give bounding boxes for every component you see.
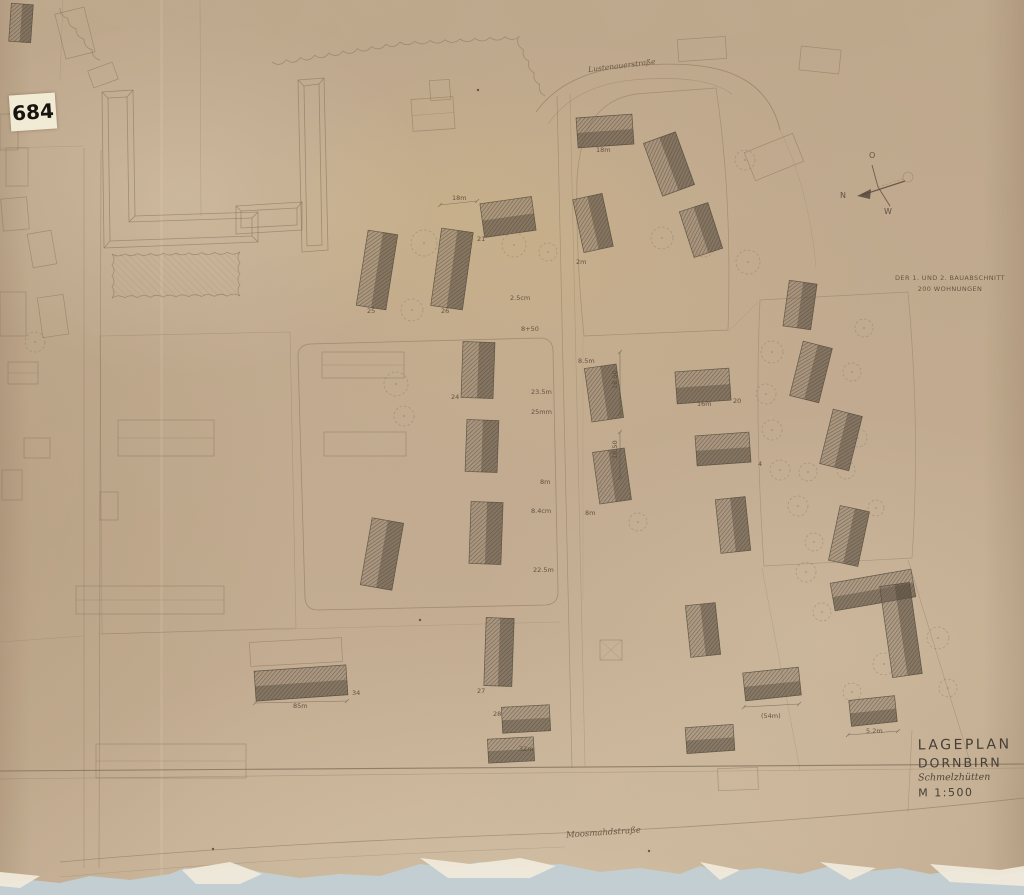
dimension-label: 28 <box>493 710 501 718</box>
planned-building <box>465 419 499 472</box>
site-plan-drawing: 18m2m2118m25262.5cm8+5023.5m25mm248m8.4c… <box>0 0 1024 895</box>
plan-district: Schmelzhütten <box>918 771 1012 786</box>
note-line-1: DER 1. UND 2. BAUABSCHNITT <box>888 273 1012 284</box>
scanned-site-plan: 18m2m2118m25262.5cm8+5023.5m25mm248m8.4c… <box>0 0 1024 895</box>
tree-center-dot <box>703 245 705 247</box>
archive-number: 684 <box>11 99 54 126</box>
garden-plot <box>114 254 238 296</box>
planned-building <box>675 368 731 404</box>
tree-center-dot <box>845 469 847 471</box>
planned-building <box>254 665 348 701</box>
tree-center-dot <box>779 469 781 471</box>
tree-center-dot <box>875 507 877 509</box>
planned-building <box>715 497 750 554</box>
tree-center-dot <box>411 309 413 311</box>
compass-direction-label: W <box>884 207 892 216</box>
planned-building <box>9 3 34 42</box>
archive-number-sticker: 684 <box>9 92 57 131</box>
dimension-label: 22.5m <box>533 566 554 574</box>
dimension-label: 8.4cm <box>531 507 551 515</box>
tree-center-dot <box>513 244 515 246</box>
dimension-label: 18m <box>596 146 611 154</box>
tree-center-dot <box>851 371 853 373</box>
tree-center-dot <box>747 261 749 263</box>
title-block: LAGEPLAN DORNBIRN Schmelzhütten M 1:500 <box>918 736 1012 802</box>
planned-building <box>743 667 802 701</box>
plan-scale: M 1:500 <box>918 785 1012 802</box>
dimension-label: 34 <box>352 689 360 697</box>
dimension-label: 2.5cm <box>510 294 530 302</box>
tree-center-dot <box>851 691 853 693</box>
dimension-label: 18.50 <box>611 370 619 389</box>
tree-center-dot <box>771 351 773 353</box>
tree-center-dot <box>661 237 663 239</box>
planned-building <box>695 432 751 466</box>
tree-center-dot <box>805 571 807 573</box>
dimension-label: 16m <box>697 400 712 408</box>
tree-center-dot <box>947 687 949 689</box>
dimension-label: 8.5m <box>578 357 595 365</box>
tree-center-dot <box>765 393 767 395</box>
tree-center-dot <box>937 637 939 639</box>
dimension-label: 25mm <box>531 408 552 416</box>
ink-speck <box>648 850 650 852</box>
construction-phase-note: DER 1. UND 2. BAUABSCHNITT 200 WOHNUNGEN <box>888 273 1012 295</box>
planned-building <box>480 197 536 238</box>
planned-building <box>484 618 514 687</box>
planned-building <box>685 724 735 753</box>
tree-center-dot <box>744 159 746 161</box>
dimension-label: 8m <box>540 478 550 486</box>
dimension-label: 5.2m <box>866 727 883 735</box>
planned-building <box>685 603 720 658</box>
tree-center-dot <box>821 611 823 613</box>
dimension-label: (54m) <box>761 712 781 720</box>
tree-center-dot <box>857 437 859 439</box>
dimension-label: 18.50 <box>611 440 619 459</box>
dimension-label: 18m <box>452 194 467 202</box>
tree-center-dot <box>609 485 611 487</box>
dimension-label: 27 <box>477 687 485 695</box>
tree-center-dot <box>423 242 425 244</box>
dimension-label: 32m <box>519 745 534 753</box>
compass-direction-label: O <box>869 151 875 160</box>
tree-center-dot <box>771 429 773 431</box>
dimension-label: 20 <box>733 397 741 405</box>
tree-center-dot <box>637 521 639 523</box>
dimension-label: 23.5m <box>531 388 552 396</box>
dimension-label: 8m <box>585 509 595 517</box>
tree-center-dot <box>883 663 885 665</box>
tree-center-dot <box>797 505 799 507</box>
dimension-label: 85m <box>293 702 308 710</box>
planned-building <box>783 280 817 329</box>
tree-center-dot <box>547 251 549 253</box>
tree-center-dot <box>807 471 809 473</box>
ink-speck <box>477 89 479 91</box>
tree-center-dot <box>34 341 36 343</box>
dimension-label: 8+50 <box>521 325 539 333</box>
plan-title: LAGEPLAN <box>918 736 1012 755</box>
planned-building <box>461 341 495 398</box>
tree-center-dot <box>403 415 405 417</box>
compass-direction-label: N <box>840 191 846 200</box>
dimension-label: 25 <box>367 307 375 315</box>
dimension-label: 4 <box>758 460 762 468</box>
dimension-label: 21 <box>477 235 485 243</box>
tree-center-dot <box>395 383 397 385</box>
ink-speck <box>419 619 421 621</box>
dimension-label: 26 <box>441 307 449 315</box>
dimension-label: 24 <box>451 393 459 401</box>
plan-city: DORNBIRN <box>918 754 1012 772</box>
ink-speck <box>212 848 214 850</box>
tree-center-dot <box>813 541 815 543</box>
tree-center-dot <box>863 327 865 329</box>
dimension-label: 2m <box>576 258 586 266</box>
planned-building <box>501 705 550 733</box>
planned-building <box>576 114 634 148</box>
note-line-2: 200 WOHNUNGEN <box>888 284 1012 295</box>
planned-building <box>469 501 503 564</box>
